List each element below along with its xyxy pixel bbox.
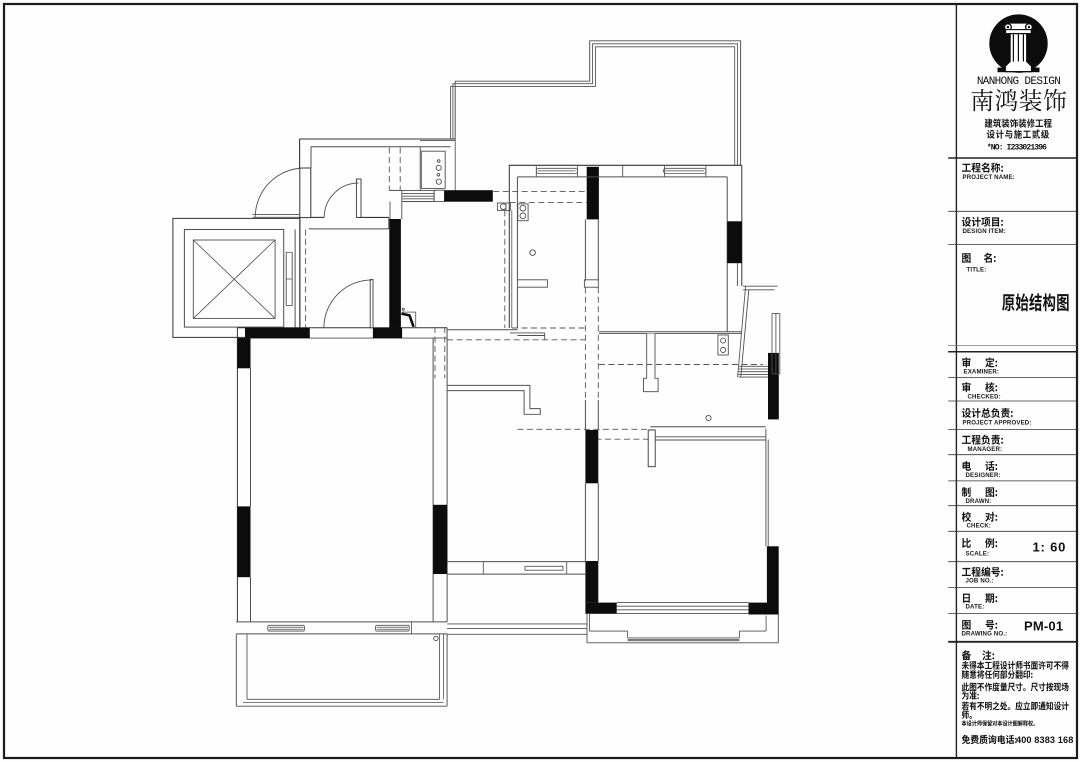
svg-text:1: 60: 1: 60 xyxy=(1033,539,1067,554)
svg-text:NANHONG DESIGN: NANHONG DESIGN xyxy=(977,76,1060,88)
svg-text:PM-01: PM-01 xyxy=(1024,618,1063,633)
svg-text:SCALE:: SCALE: xyxy=(966,550,990,557)
svg-text:DATE:: DATE: xyxy=(966,604,985,611)
svg-text:CHECKED:: CHECKED: xyxy=(968,393,1001,400)
svg-text:*NO: I233021396: *NO: I233021396 xyxy=(987,143,1047,152)
svg-text:TITLE:: TITLE: xyxy=(967,266,987,273)
svg-text:PROJECT NAME:: PROJECT NAME: xyxy=(963,174,1015,181)
svg-text:400 8383 168: 400 8383 168 xyxy=(1016,735,1073,745)
svg-text:PROJECT APPROVED:: PROJECT APPROVED: xyxy=(963,420,1032,427)
svg-text:EXAMINER:: EXAMINER: xyxy=(964,369,1000,376)
svg-text:DRAWN:: DRAWN: xyxy=(966,498,992,505)
svg-text:MANAGER:: MANAGER: xyxy=(968,446,1003,453)
svg-text:DESIGNER:: DESIGNER: xyxy=(966,472,1001,479)
svg-text:DESIGN ITEM:: DESIGN ITEM: xyxy=(963,228,1006,235)
svg-text:JOB NO.:: JOB NO.: xyxy=(966,577,994,584)
svg-text:DRAWING NO.:: DRAWING NO.: xyxy=(962,630,1008,637)
svg-text:CHECK:: CHECK: xyxy=(967,523,992,530)
